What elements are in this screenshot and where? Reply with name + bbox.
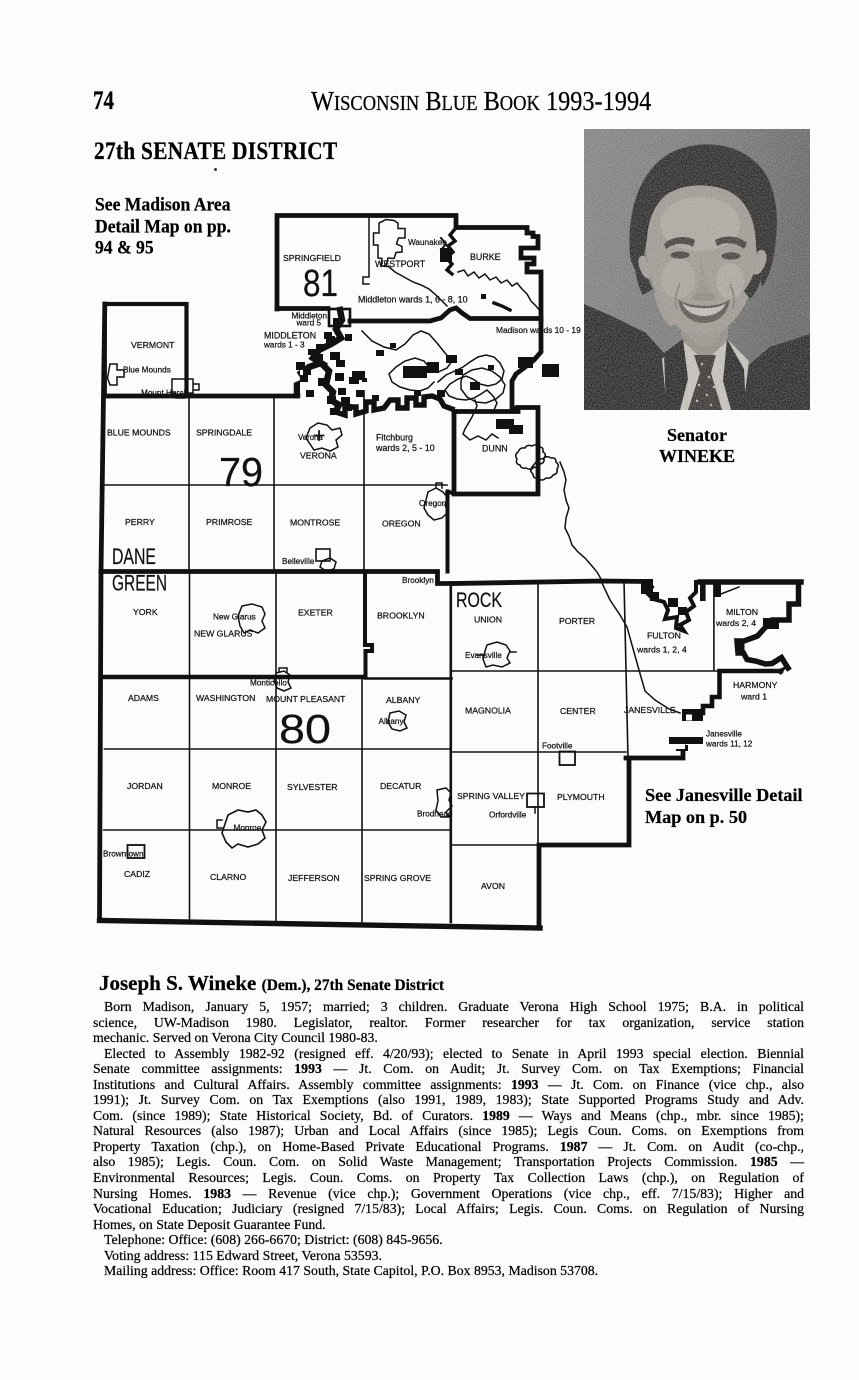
svg-text:ward 5: ward 5: [296, 319, 322, 328]
svg-text:Janesville: Janesville: [706, 730, 742, 739]
svg-text:MAGNOLIA: MAGNOLIA: [465, 706, 511, 716]
svg-text:AVON: AVON: [481, 881, 505, 891]
svg-text:PORTER: PORTER: [559, 616, 595, 626]
svg-text:CADIZ: CADIZ: [124, 869, 151, 879]
svg-text:CLARNO: CLARNO: [210, 872, 246, 882]
svg-text:VERMONT: VERMONT: [131, 340, 175, 350]
svg-text:Monroe: Monroe: [234, 824, 262, 833]
svg-text:BLUE MOUNDS: BLUE MOUNDS: [107, 428, 171, 438]
svg-text:Footville: Footville: [542, 742, 573, 751]
svg-text:SPRING GROVE: SPRING GROVE: [364, 873, 431, 883]
svg-text:wards 2, 4: wards 2, 4: [715, 618, 756, 628]
svg-text:wards 11, 12: wards 11, 12: [705, 740, 753, 749]
svg-text:SYLVESTER: SYLVESTER: [287, 782, 338, 792]
svg-text:Mount Horeb: Mount Horeb: [141, 389, 189, 398]
svg-text:WASHINGTON: WASHINGTON: [196, 693, 255, 703]
svg-text:Madison wards 10 - 19: Madison wards 10 - 19: [496, 325, 581, 335]
svg-text:ALBANY: ALBANY: [386, 695, 420, 705]
svg-text:Brooklyn: Brooklyn: [402, 576, 434, 585]
svg-text:WESTPORT: WESTPORT: [375, 259, 426, 269]
svg-text:CENTER: CENTER: [560, 706, 596, 716]
svg-text:Orfordville: Orfordville: [489, 811, 527, 820]
svg-text:GREEN: GREEN: [112, 571, 167, 596]
svg-text:SPRINGDALE: SPRINGDALE: [196, 428, 252, 438]
svg-text:HARMONY: HARMONY: [733, 680, 778, 690]
svg-text:PRIMROSE: PRIMROSE: [206, 517, 253, 527]
svg-text:wards 1, 2, 4: wards 1, 2, 4: [636, 645, 687, 655]
svg-text:Fitchburg: Fitchburg: [376, 433, 413, 443]
svg-text:SPRING VALLEY: SPRING VALLEY: [457, 791, 525, 801]
svg-text:Oregon: Oregon: [419, 499, 447, 508]
svg-text:FULTON: FULTON: [647, 631, 681, 641]
svg-text:JEFFERSON: JEFFERSON: [288, 873, 340, 883]
svg-text:ROCK: ROCK: [456, 589, 502, 612]
svg-text:BURKE: BURKE: [470, 252, 501, 262]
svg-text:Blue Mounds: Blue Mounds: [123, 366, 171, 375]
svg-text:DUNN: DUNN: [482, 444, 508, 454]
svg-text:UNION: UNION: [474, 615, 502, 625]
svg-text:New Glarus: New Glarus: [213, 613, 256, 622]
svg-text:OREGON: OREGON: [382, 519, 421, 529]
svg-text:79: 79: [219, 449, 263, 495]
svg-text:MILTON: MILTON: [726, 607, 758, 617]
svg-text:MONROE: MONROE: [212, 781, 251, 791]
svg-text:ADAMS: ADAMS: [128, 693, 159, 703]
svg-text:JORDAN: JORDAN: [127, 781, 163, 791]
svg-text:80: 80: [279, 706, 331, 752]
svg-text:wards 1 - 3: wards 1 - 3: [263, 341, 305, 350]
svg-text:ward 1: ward 1: [740, 692, 767, 702]
svg-text:MIDDLETON: MIDDLETON: [264, 331, 316, 341]
svg-text:DANE: DANE: [112, 544, 156, 569]
svg-text:YORK: YORK: [133, 607, 158, 617]
svg-text:NEW GLARUS: NEW GLARUS: [194, 629, 253, 639]
svg-text:Verona: Verona: [298, 433, 323, 442]
svg-text:DECATUR: DECATUR: [380, 781, 421, 791]
svg-text:Monticello: Monticello: [250, 679, 287, 688]
svg-text:MONTROSE: MONTROSE: [290, 518, 340, 528]
svg-text:wards 2, 5 - 10: wards 2, 5 - 10: [375, 443, 435, 453]
svg-text:EXETER: EXETER: [298, 608, 333, 618]
svg-text:Belleville: Belleville: [282, 557, 315, 566]
svg-text:PLYMOUTH: PLYMOUTH: [557, 792, 605, 802]
svg-text:Albany: Albany: [379, 717, 405, 726]
svg-text:JANESVILLE: JANESVILLE: [624, 705, 676, 715]
svg-text:MOUNT PLEASANT: MOUNT PLEASANT: [266, 694, 346, 704]
svg-text:BROOKLYN: BROOKLYN: [377, 611, 425, 621]
svg-text:Brodhead: Brodhead: [417, 810, 453, 819]
svg-text:Evansville: Evansville: [465, 651, 502, 660]
svg-text:VERONA: VERONA: [300, 451, 337, 461]
svg-text:SPRINGFIELD: SPRINGFIELD: [283, 253, 341, 263]
svg-text:81: 81: [303, 263, 338, 305]
svg-text:Waunakee: Waunakee: [408, 238, 447, 247]
svg-text:Middleton wards 1, 6 - 8, 10: Middleton wards 1, 6 - 8, 10: [358, 295, 468, 305]
svg-text:PERRY: PERRY: [125, 517, 155, 527]
svg-text:Browntown: Browntown: [103, 850, 144, 859]
